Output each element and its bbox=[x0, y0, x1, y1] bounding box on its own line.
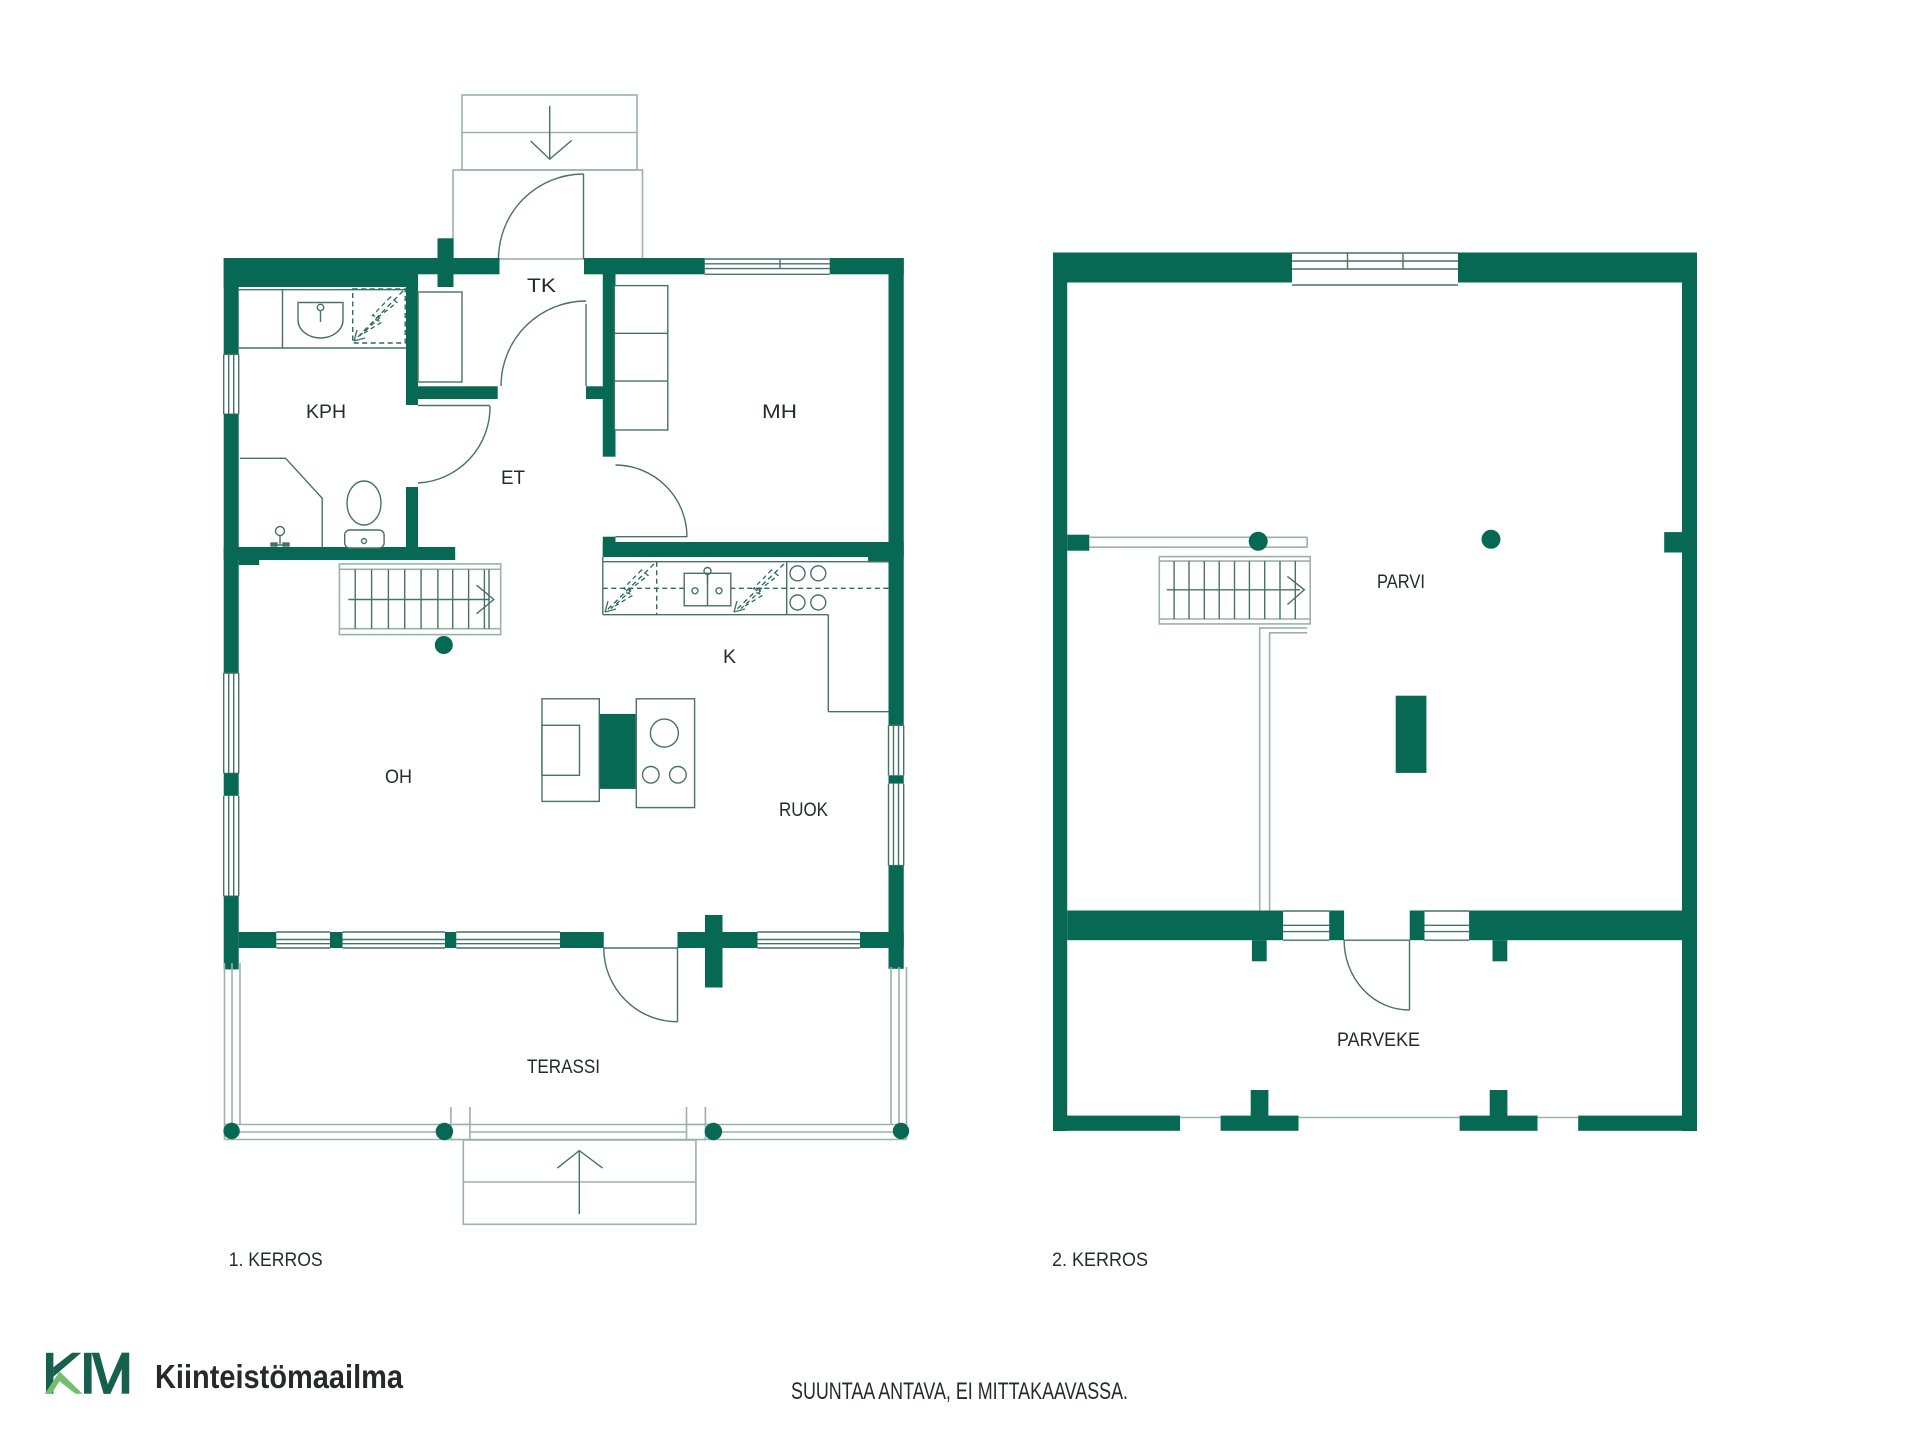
svg-text:SUUNTAA ANTAVA, EI MITTAKAAVAS: SUUNTAA ANTAVA, EI MITTAKAAVASSA. bbox=[791, 1379, 1128, 1405]
svg-text:OH: OH bbox=[385, 766, 412, 788]
svg-text:TERASSI: TERASSI bbox=[527, 1056, 600, 1078]
svg-text:K: K bbox=[723, 646, 736, 668]
svg-text:PARVI: PARVI bbox=[1377, 571, 1425, 593]
svg-text:MH: MH bbox=[762, 401, 797, 423]
svg-text:1. KERROS: 1. KERROS bbox=[229, 1249, 323, 1271]
svg-text:Kiinteistömaailma: Kiinteistömaailma bbox=[155, 1358, 404, 1395]
svg-text:ET: ET bbox=[501, 467, 525, 489]
svg-text:2. KERROS: 2. KERROS bbox=[1052, 1249, 1148, 1271]
svg-text:TK: TK bbox=[527, 275, 556, 297]
svg-text:KPH: KPH bbox=[306, 401, 346, 423]
svg-text:PARVEKE: PARVEKE bbox=[1337, 1029, 1420, 1051]
svg-text:RUOK: RUOK bbox=[779, 799, 828, 821]
